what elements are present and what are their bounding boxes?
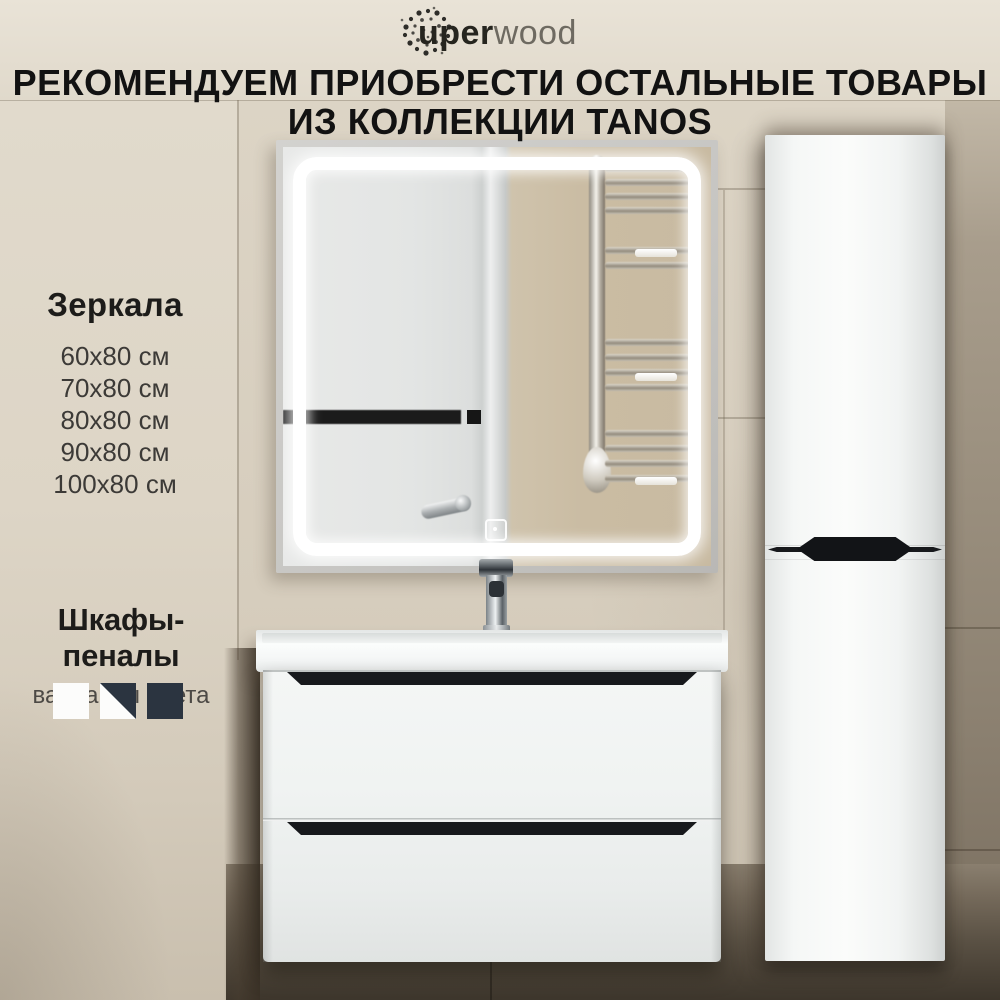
cabinets-title: Шкафы-пеналы xyxy=(0,602,242,674)
tile-grout-line xyxy=(945,627,1000,629)
mirrors-info-block: Зеркала 60x80 см 70x80 см 80x80 см 90x80… xyxy=(8,286,222,500)
logo-text-bold: uper xyxy=(418,14,494,52)
mirror-sizes-list: 60x80 см 70x80 см 80x80 см 90x80 см 100x… xyxy=(8,340,222,500)
color-swatches xyxy=(53,683,183,719)
vanity-drawer-handle-bottom xyxy=(287,822,697,835)
faucet-detail xyxy=(489,581,504,597)
mirrors-title: Зеркала xyxy=(8,286,222,324)
mirror-glass-reflection xyxy=(283,147,711,566)
tile-grout-line xyxy=(237,100,239,660)
tile-grout-line xyxy=(723,190,725,630)
tile-grout-line xyxy=(945,849,1000,851)
brand-logo: uperwood xyxy=(398,4,618,60)
mirror-size-item: 60x80 см xyxy=(8,340,222,372)
promo-heading: РЕКОМЕНДУЕМ ПРИОБРЕСТИ ОСТАЛЬНЫЕ ТОВАРЫ … xyxy=(0,63,1000,141)
wall-left-panel xyxy=(0,100,237,1000)
led-mirror xyxy=(276,140,718,573)
vanity-sink-top xyxy=(256,630,728,672)
swatch-white-graphite xyxy=(100,683,136,719)
mirror-size-item: 80x80 см xyxy=(8,404,222,436)
promo-heading-line1: РЕКОМЕНДУЕМ ПРИОБРЕСТИ ОСТАЛЬНЫЕ ТОВАРЫ xyxy=(0,63,1000,102)
mirror-size-item: 100x80 см xyxy=(8,468,222,500)
swatch-white xyxy=(53,683,89,719)
logo-text-light: wood xyxy=(494,14,577,52)
vanity-drawer-handle-top xyxy=(287,672,697,685)
tall-cabinet-handle xyxy=(797,537,913,561)
vanity-cabinet xyxy=(263,670,721,962)
promo-heading-line2: ИЗ КОЛЛЕКЦИИ TANOS xyxy=(0,102,1000,141)
mirror-touch-sensor-icon xyxy=(485,519,507,541)
mirror-size-item: 70x80 см xyxy=(8,372,222,404)
logo-text: uperwood xyxy=(418,14,577,53)
mirror-led-ring xyxy=(293,157,701,556)
swatch-graphite xyxy=(147,683,183,719)
drawer-edge-line xyxy=(263,670,721,672)
drawer-separator xyxy=(263,818,721,821)
mirror-size-item: 90x80 см xyxy=(8,436,222,468)
